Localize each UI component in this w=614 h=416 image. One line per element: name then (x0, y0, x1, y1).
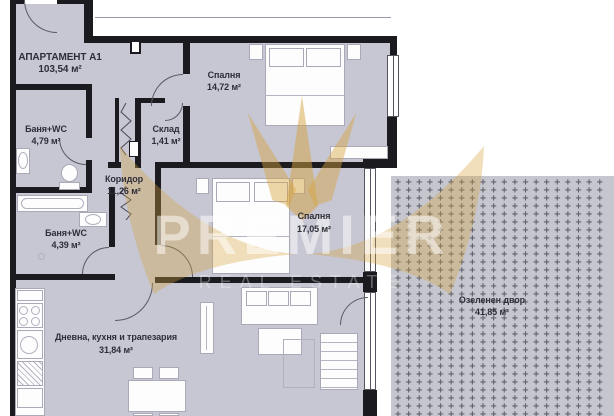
wall-window-block-bottom (363, 390, 377, 416)
toilet-tank (59, 182, 80, 190)
kitchen-sink-basin (20, 336, 38, 354)
tv-unit-icon (320, 333, 358, 390)
room-label-storage-area: 1,41 м² (152, 136, 181, 146)
wall-bath1-right-a (86, 84, 92, 138)
apartment-area: 103,54 м² (38, 65, 81, 75)
room-label-bedroom2-area: 17,05 м² (297, 224, 331, 234)
kitchen-cabinet (17, 290, 43, 301)
stove-burner (31, 306, 40, 315)
pillow-icon (269, 48, 304, 67)
floor-drain-icon (38, 253, 45, 260)
sink-basin (18, 152, 28, 169)
room-label-yard-name: Озеленен двор (459, 295, 525, 305)
floor-lamp-icon (200, 302, 214, 354)
sink-basin (85, 214, 101, 225)
dishwasher-icon (17, 361, 43, 386)
terrace-parapet-line (95, 17, 391, 18)
dining-table-icon (128, 380, 186, 412)
wall-entry-top-b (57, 0, 84, 4)
watermark-tagline: REAL ESTATE (199, 272, 406, 293)
column-marker (130, 40, 141, 54)
room-label-corridor-area: 11,26 м² (107, 186, 140, 196)
room-label-bedroom1-name: Спалня (208, 70, 241, 80)
rug-icon (283, 339, 315, 388)
room-label-living-area: 31,84 м² (99, 345, 133, 355)
nightstand-icon (347, 44, 361, 60)
stove-burner (19, 306, 28, 315)
wall-bath1-top (10, 84, 92, 90)
chair-icon (133, 367, 153, 379)
room-label-bedroom2-name: Спалня (298, 211, 331, 221)
floor-lamp-rod (206, 306, 207, 350)
kitchen-cabinet (17, 388, 43, 408)
floor-plan: ++++++++++++++++++++++++++++++++++++++++… (0, 0, 614, 416)
room-label-bath1-area: 4,79 м² (32, 136, 61, 146)
apartment-title: АПАРТАМЕНТ А1 (18, 53, 101, 63)
room-label-bath2-name: Баня+WC (45, 228, 87, 238)
toilet-icon (61, 164, 78, 182)
room-label-living-name: Дневна, кухня и трапезария (55, 332, 177, 342)
room-label-bedroom1-area: 14,72 м² (207, 82, 241, 92)
chair-icon (159, 367, 179, 379)
nightstand-icon (249, 44, 263, 60)
pillow-icon (306, 48, 341, 67)
room-label-corridor-name: Коридор (105, 174, 143, 184)
bathtub-inner (21, 198, 84, 209)
wall-entry-top-a (10, 0, 24, 4)
room-label-bath2-area: 4,39 м² (52, 240, 81, 250)
wall-bedroom1-left-a (183, 43, 190, 74)
stove-burner (31, 317, 40, 326)
room-label-storage-name: Склад (152, 124, 179, 134)
room-label-bath1-name: Баня+WC (25, 124, 67, 134)
wall-bath2-bottom (10, 274, 115, 280)
stove-burner (19, 317, 28, 326)
room-label-yard-area: 41,85 м² (475, 307, 509, 317)
terrace (92, 0, 390, 37)
